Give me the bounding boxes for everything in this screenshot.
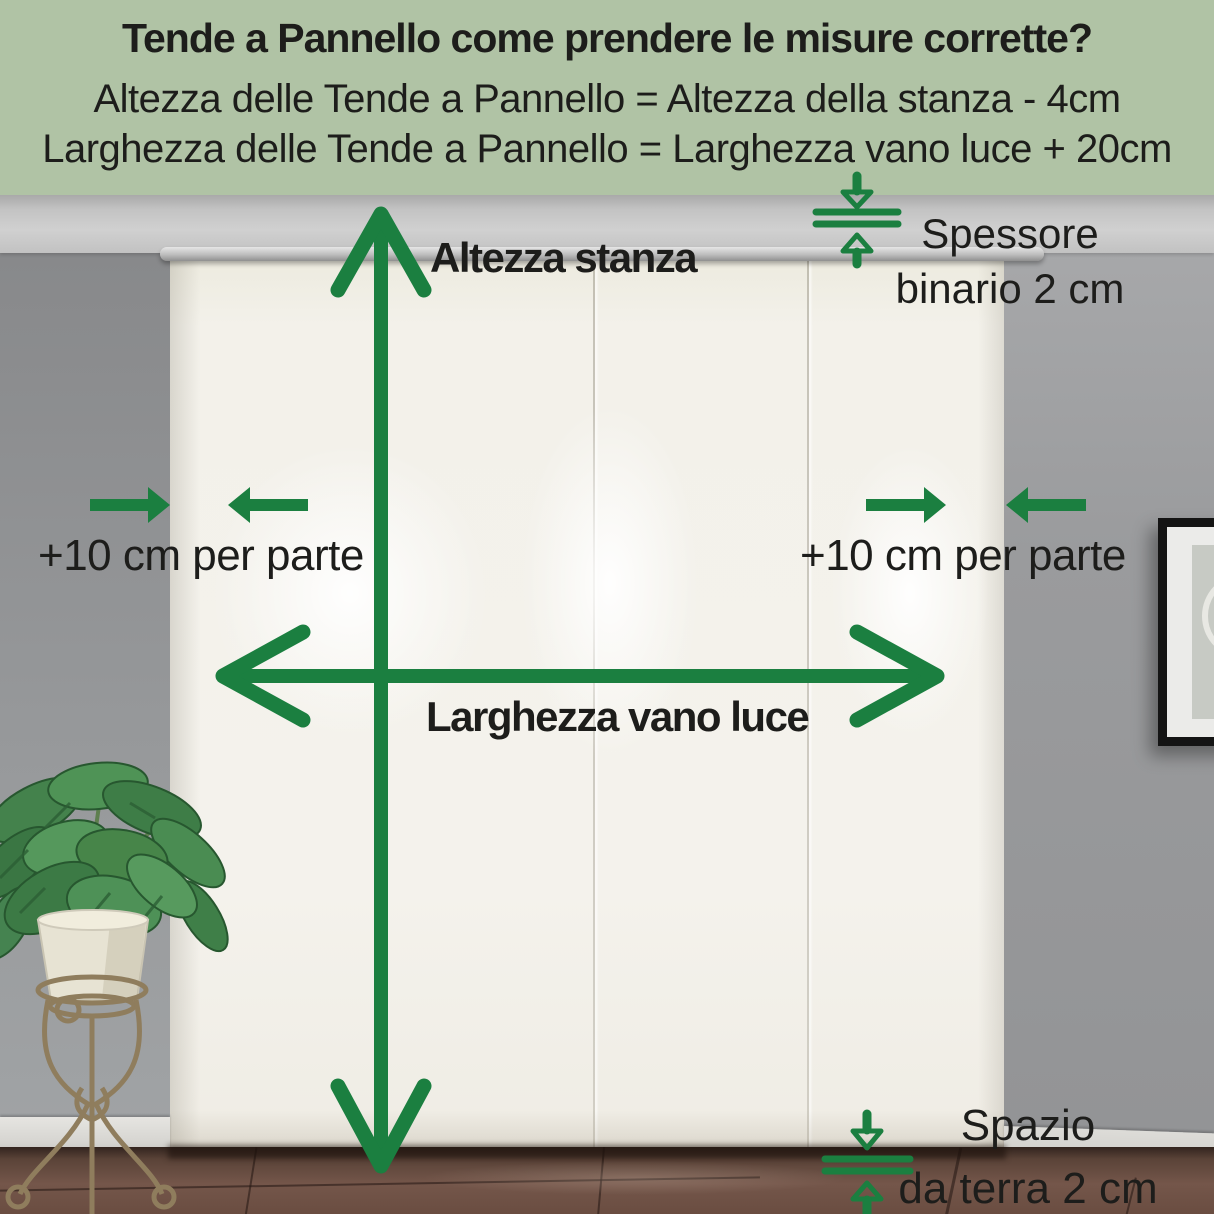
opening-width-label: Larghezza vano luce xyxy=(426,693,808,741)
track-thickness-label-line2: binario 2 cm xyxy=(875,261,1145,316)
track-thickness-label: Spessore binario 2 cm xyxy=(875,206,1145,316)
plant-illustration xyxy=(0,748,240,1214)
formula-width: Larghezza delle Tende a Pannello = Largh… xyxy=(0,124,1214,174)
extra-width-label-right: +10 cm per parte xyxy=(800,531,1126,581)
picture-art xyxy=(1192,545,1214,719)
floor-gap-label-line1: Spazio xyxy=(893,1094,1163,1157)
room-height-label: Altezza stanza xyxy=(430,234,696,282)
floor-gap-label: Spazio da terra 2 cm xyxy=(893,1094,1163,1220)
header-band: Tende a Pannello come prendere le misure… xyxy=(0,0,1214,195)
floor-reflection xyxy=(420,1161,850,1195)
plant xyxy=(0,748,240,1214)
floor-gap-label-line2: da terra 2 cm xyxy=(893,1157,1163,1220)
light-reflection xyxy=(830,443,990,743)
picture-frame xyxy=(1158,518,1214,746)
picture-circle-motif xyxy=(1202,573,1214,659)
page-title: Tende a Pannello come prendere le misure… xyxy=(0,0,1214,62)
track-thickness-label-line1: Spessore xyxy=(875,206,1145,261)
formula-height: Altezza delle Tende a Pannello = Altezza… xyxy=(0,74,1214,124)
extra-width-label-left: +10 cm per parte xyxy=(38,531,364,581)
curtain-floor-shadow xyxy=(168,1145,1006,1159)
